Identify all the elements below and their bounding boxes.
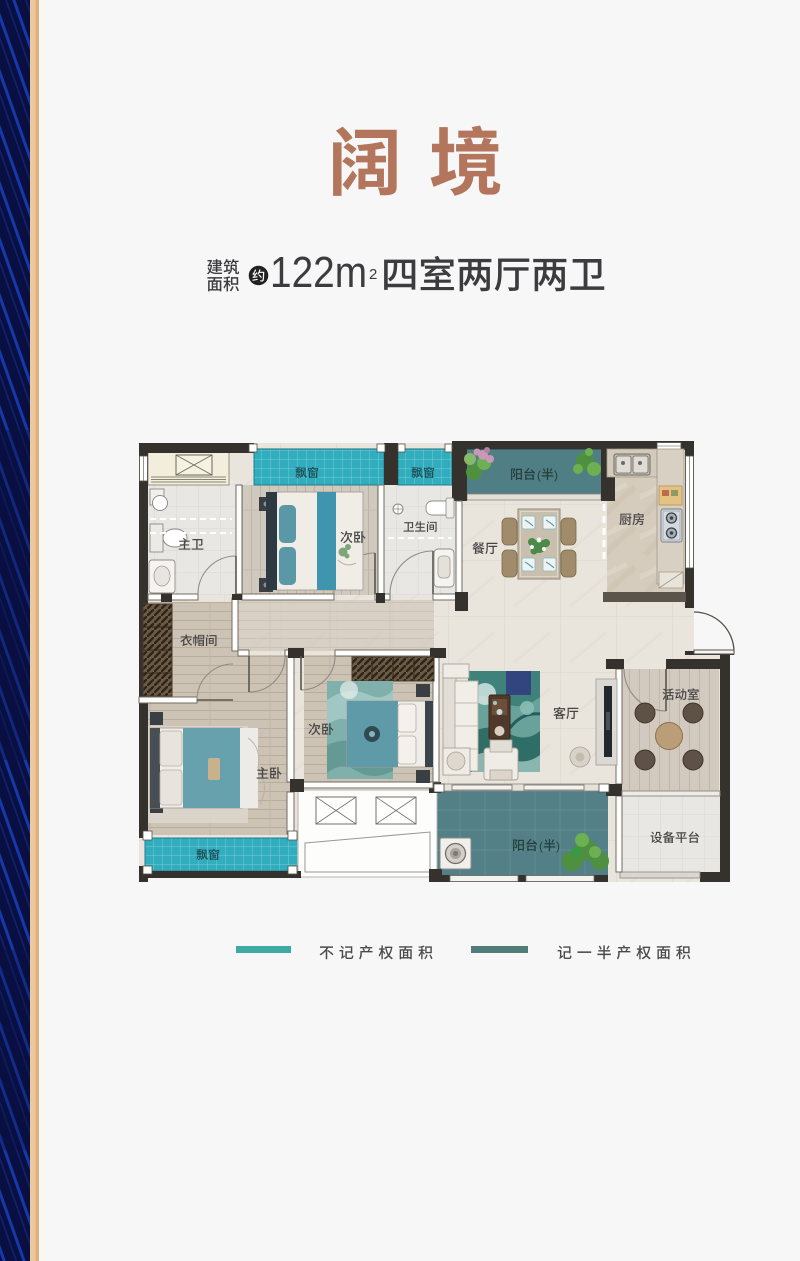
svg-text:(: ( [539,839,543,853]
svg-text:): ) [554,468,558,482]
svg-text:2: 2 [369,266,377,283]
svg-text:(: ( [537,468,541,482]
svg-text:): ) [556,839,560,853]
svg-text:122m: 122m [270,248,367,297]
